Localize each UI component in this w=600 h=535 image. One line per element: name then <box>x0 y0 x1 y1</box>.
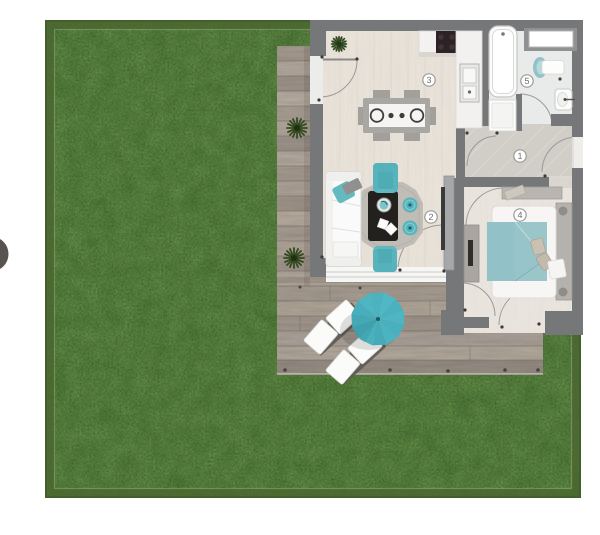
svg-text:4: 4 <box>517 210 522 220</box>
svg-text:3: 3 <box>426 75 431 85</box>
svg-text:2: 2 <box>428 212 433 222</box>
svg-text:5: 5 <box>524 76 529 86</box>
svg-text:1: 1 <box>517 151 522 161</box>
